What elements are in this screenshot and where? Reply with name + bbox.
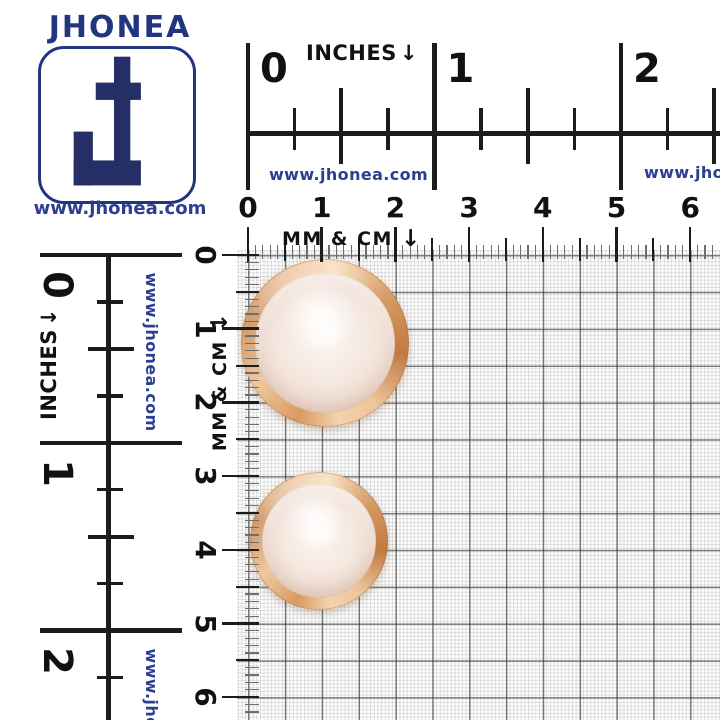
mm-cm-label: MM & CM↓: [282, 226, 420, 252]
inch-quarter-tick: [97, 300, 123, 304]
inch-quarter-tick: [88, 535, 134, 539]
inches-label: INCHES↓: [38, 299, 60, 429]
inch-major-tick: [432, 43, 437, 190]
cm-number: 6: [670, 194, 710, 222]
cm-number: 4: [188, 533, 222, 567]
cm-number: 2: [188, 385, 222, 419]
cm-number: 3: [188, 459, 222, 493]
inch-quarter-tick: [97, 582, 123, 586]
inch-quarter-tick: [386, 108, 390, 150]
inch-major-tick: [246, 43, 251, 190]
watermark-url: www.jhonea.com: [142, 653, 162, 720]
inch-quarter-tick: [526, 88, 530, 164]
cm-number: 1: [188, 312, 222, 346]
inch-major-tick: [40, 441, 182, 446]
brand-j-icon: [41, 49, 187, 195]
brand-url: www.jhonea.com: [20, 198, 220, 219]
inch-quarter-tick: [573, 108, 577, 150]
inch-number: 0: [260, 49, 288, 89]
cm-number: 3: [449, 194, 489, 222]
inch-major-tick: [40, 628, 182, 633]
pearl-highlight: [298, 512, 342, 550]
brand-logo-mark: [38, 46, 196, 204]
inch-number: 1: [37, 453, 77, 493]
cm-number: 1: [302, 194, 342, 222]
inch-quarter-tick: [479, 108, 483, 150]
ruler-baseline: [106, 253, 111, 720]
pearl-button-large: [241, 259, 409, 427]
pearl-highlight: [299, 307, 351, 351]
inch-quarter-tick: [88, 347, 134, 351]
inch-quarter-tick: [97, 488, 123, 492]
down-arrow-icon: ↓: [401, 226, 420, 252]
cm-number: 0: [228, 194, 268, 222]
watermark-url: www.jhonea.com: [142, 277, 162, 427]
inch-number: 0: [37, 265, 77, 305]
cm-number: 6: [188, 680, 222, 714]
inch-quarter-tick: [97, 394, 123, 398]
down-arrow-icon: ↓: [37, 308, 61, 326]
cm-number: 4: [523, 194, 563, 222]
cm-number: 5: [597, 194, 637, 222]
cm-number: 2: [375, 194, 415, 222]
watermark-url: www.jhonea.com: [269, 165, 428, 184]
watermark-url: www.jhonea.com: [644, 163, 720, 182]
brand-name: JHONEA: [20, 10, 220, 45]
inch-quarter-tick: [666, 108, 670, 150]
inch-number: 2: [633, 49, 661, 89]
inch-quarter-tick: [712, 88, 716, 164]
inch-major-tick: [40, 253, 182, 258]
inch-major-tick: [619, 43, 624, 190]
mm-cm-label: MM & CM↓: [209, 319, 231, 445]
inch-number: 2: [37, 641, 77, 681]
cm-number: 0: [188, 238, 222, 272]
inch-number: 1: [447, 49, 475, 89]
product-image: JHONEA www.jhonea.com 012INCHES↓www.jhon…: [0, 0, 720, 720]
inch-quarter-tick: [293, 108, 297, 150]
cm-number: 5: [188, 607, 222, 641]
inch-quarter-tick: [339, 88, 343, 164]
inch-quarter-tick: [97, 676, 123, 680]
pearl-button-small: [250, 472, 388, 610]
down-arrow-icon: ↓: [207, 313, 233, 332]
down-arrow-icon: ↓: [400, 41, 418, 65]
ruler-baseline: [246, 131, 720, 136]
inches-label: INCHES↓: [306, 41, 418, 65]
